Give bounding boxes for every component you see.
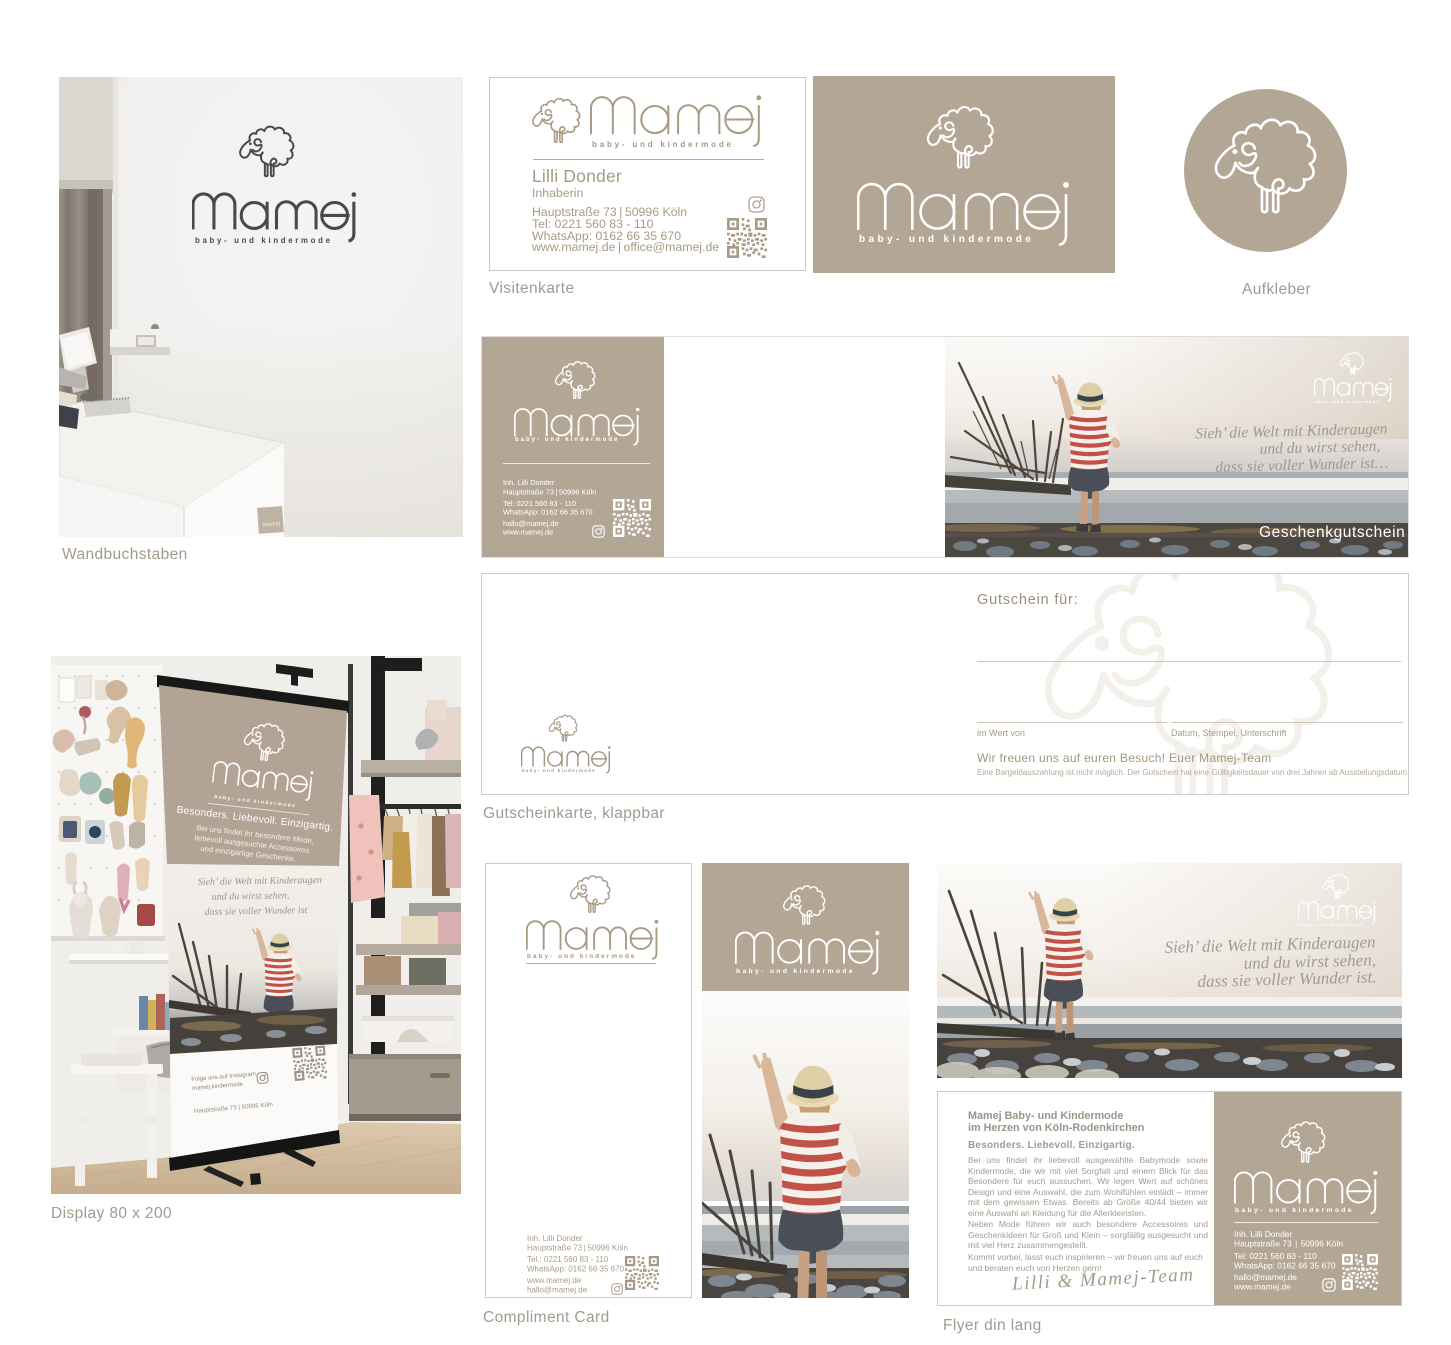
svg-text:www.mamej.de: www.mamej.de xyxy=(1234,1282,1291,1292)
svg-text:baby- und kindermode: baby- und kindermode xyxy=(1235,1207,1354,1214)
svg-text:baby- und kindermode: baby- und kindermode xyxy=(736,968,855,975)
svg-text:baby- und kindermode: baby- und kindermode xyxy=(195,236,333,245)
svg-text:dass sie voller Wunder ist: dass sie voller Wunder ist xyxy=(204,905,307,918)
svg-text:www.mamej.de: www.mamej.de xyxy=(503,528,553,537)
svg-text:baby- und kindermode: baby- und kindermode xyxy=(527,953,637,960)
svg-text:baby- und kindermode: baby- und kindermode xyxy=(859,234,1034,245)
svg-text:Inh. Lilli Donder: Inh. Lilli Donder xyxy=(503,478,555,487)
svg-text:Hauptstraße 73 | 50996 Köln: Hauptstraße 73 | 50996 Köln xyxy=(1234,1239,1343,1249)
svg-text:Hauptstraße 73 | 50996 Köln: Hauptstraße 73 | 50996 Köln xyxy=(503,488,596,497)
svg-text:baby- und kindermode: baby- und kindermode xyxy=(1315,400,1380,404)
svg-text:baby- und kindermode: baby- und kindermode xyxy=(592,140,734,149)
svg-text:Tel.: 0221 560 83 - 110: Tel.: 0221 560 83 - 110 xyxy=(527,1255,609,1264)
svg-text:baby- und kindermode: baby- und kindermode xyxy=(522,768,596,773)
svg-text:baby- und kindermode: baby- und kindermode xyxy=(1299,923,1364,927)
svg-text:WhatsApp: 0162 66 35 670: WhatsApp: 0162 66 35 670 xyxy=(527,1265,625,1274)
svg-text:und du wirst sehen,: und du wirst sehen, xyxy=(212,890,290,902)
svg-text:WhatsApp: 0162 66 35 670: WhatsApp: 0162 66 35 670 xyxy=(1234,1261,1336,1271)
svg-text:Sieh’ die Welt mit Kinderaugen: Sieh’ die Welt mit Kinderaugen xyxy=(198,875,322,888)
svg-text:Hauptstraße 73 | 50996 Köln: Hauptstraße 73 | 50996 Köln xyxy=(527,1244,628,1253)
svg-text:mamej: mamej xyxy=(262,521,280,528)
svg-text:baby- und kindermode: baby- und kindermode xyxy=(515,437,619,443)
svg-text:www.mamej.de: www.mamej.de xyxy=(527,1276,582,1285)
svg-text:hallo@mamej.de: hallo@mamej.de xyxy=(1234,1272,1297,1282)
svg-text:WhatsApp: 0162 66 35 670: WhatsApp: 0162 66 35 670 xyxy=(503,508,593,517)
svg-text:Inh. Lilli Donder: Inh. Lilli Donder xyxy=(527,1234,583,1243)
svg-text:Tel: 0221 560 83 - 110: Tel: 0221 560 83 - 110 xyxy=(1234,1251,1317,1261)
svg-text:hallo@mamej.de: hallo@mamej.de xyxy=(527,1286,588,1295)
